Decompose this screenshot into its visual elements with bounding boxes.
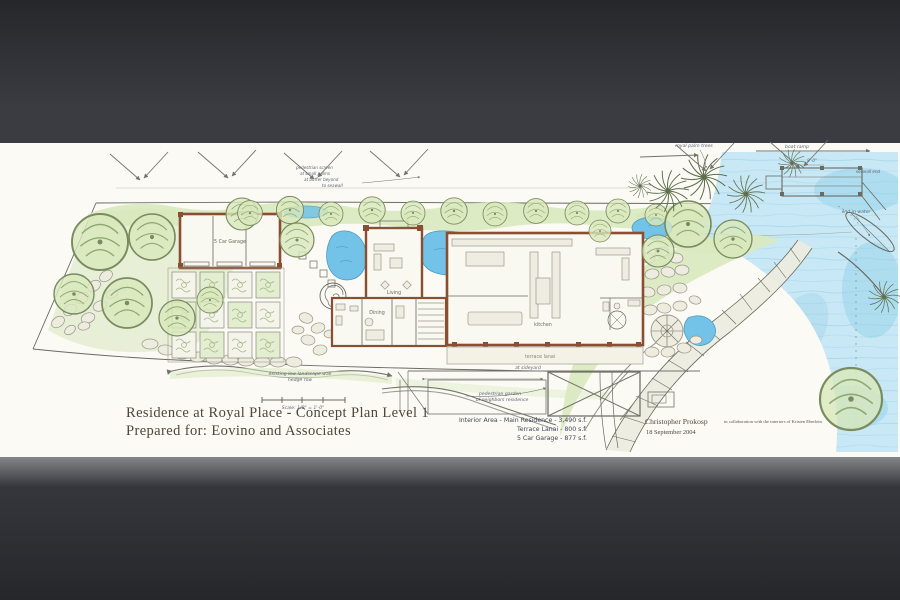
tree-icon [401, 201, 425, 225]
living-label: Living [387, 290, 401, 296]
tree-icon [441, 198, 467, 224]
plan-title: Residence at Royal Place - Concept Plan … [126, 405, 429, 421]
note-neighbor-2: of neighbors residence [476, 397, 529, 403]
tree-icon [319, 202, 343, 226]
tree-icon [483, 202, 507, 226]
parterre-bed [200, 332, 224, 358]
sheet-shadow-glow [0, 457, 900, 487]
parterre-bed [228, 272, 252, 298]
tree-icon [565, 201, 589, 225]
kitchen-label: kitchen [534, 322, 552, 328]
tree-icon [665, 201, 711, 247]
plan-subtitle: Prepared for: Eovino and Associates [126, 423, 351, 439]
note-dock-dim: 8'-0" [807, 158, 817, 163]
main-residence: kitchen terrace lanai [447, 233, 643, 364]
paving-stone [292, 326, 304, 334]
paving-stone [142, 339, 158, 349]
plan-date: 18 September 2004 [646, 429, 697, 436]
paving-stone [673, 301, 687, 311]
note-screen-4: to seawall [322, 183, 344, 188]
designer-name: Christopher Prokosp [645, 417, 708, 426]
paving-stone [675, 265, 689, 275]
lanai-label: terrace lanai [525, 354, 555, 360]
site-plan-sheet: 5 Car Garage Living Dining [0, 0, 900, 600]
collaboration-note: in collaboration with the interiors of K… [724, 419, 823, 424]
note-neighbor-1: pedestrian garden [478, 391, 521, 397]
garage-label: 5 Car Garage [214, 239, 246, 245]
note-end-in-water: end in water [842, 209, 872, 215]
tree-icon [159, 300, 195, 336]
tree-icon [589, 220, 611, 242]
tree-icon [524, 199, 549, 224]
tree-icon [359, 197, 385, 223]
note-hedge-1: existing low landscape wall [269, 371, 333, 377]
west-wing: Dining [332, 298, 446, 346]
tree-icon [714, 220, 752, 258]
paving-stone [645, 347, 659, 357]
tree-icon [606, 199, 630, 223]
parterre-bed [256, 302, 280, 328]
area-lanai: Terrace Lanai - 800 s.f. [516, 426, 587, 433]
screenshot-root: 5 Car Garage Living Dining [0, 0, 900, 600]
dining-label: Dining [369, 310, 385, 316]
tree-icon [54, 274, 94, 314]
paving-stone [690, 336, 702, 344]
note-screen-3: at buffer beyond [304, 177, 339, 182]
tree-icon [276, 196, 303, 223]
tree-icon [72, 214, 128, 270]
living-pavilion: Living [363, 221, 423, 303]
note-sideyard: at sideyard [515, 365, 541, 371]
tree-icon [642, 235, 674, 267]
note-seawall: seawall end [856, 169, 881, 174]
note-screen-1: pedestrian screen [295, 165, 333, 170]
tree-icon [102, 278, 152, 328]
note-palms: royal palm trees [675, 143, 713, 149]
area-garage: 5 Car Garage - 877 s.f. [517, 435, 587, 442]
note-ramp: boat ramp [785, 144, 809, 150]
parterre-bed [256, 332, 280, 358]
tree-icon [197, 287, 223, 313]
note-hedge-2: hedge row [288, 377, 313, 383]
parterre-bed [228, 332, 252, 358]
parterre-bed [172, 272, 196, 298]
tree-icon [820, 368, 882, 430]
note-screen-2: at small palms [300, 171, 331, 176]
parterre-bed [256, 272, 280, 298]
tree-icon [280, 223, 314, 257]
area-interior: Interior Area - Main Residence - 3,490 s… [459, 417, 587, 424]
tree-icon [129, 214, 175, 260]
tree-icon [238, 201, 263, 226]
parterre-bed [228, 302, 252, 328]
